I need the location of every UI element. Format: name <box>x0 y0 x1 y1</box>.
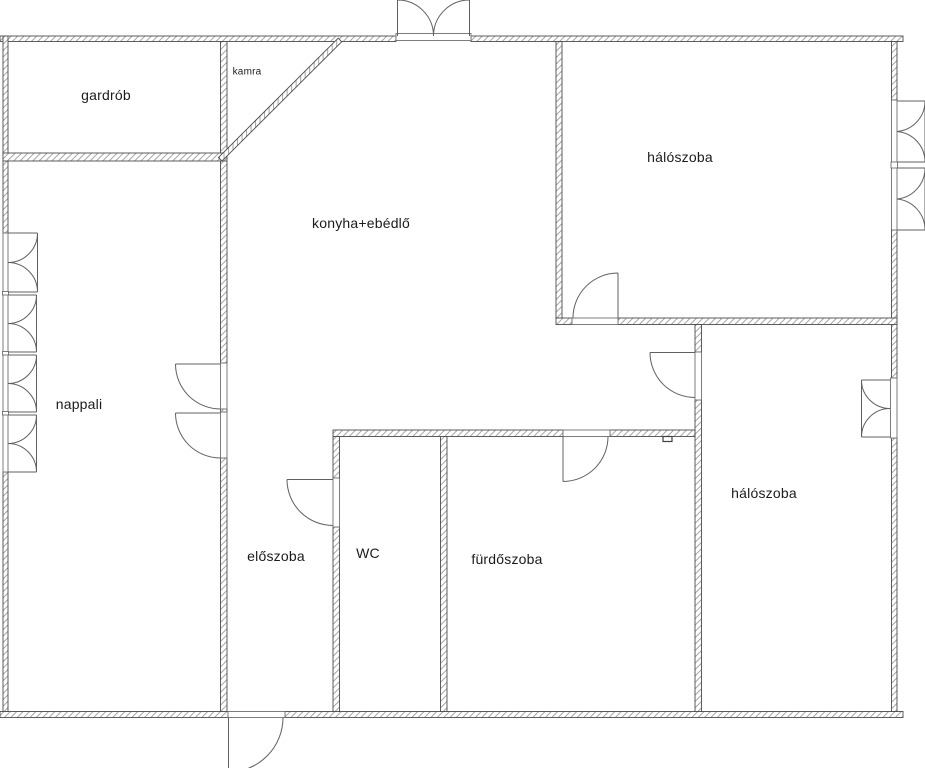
sill-wc-door <box>333 478 340 527</box>
sill-nappali-door-2 <box>221 412 228 458</box>
room-label-nappali: nappali <box>56 396 103 412</box>
door-entrance <box>229 718 284 768</box>
wall-gardrob-bottom <box>3 153 227 161</box>
window-haloszoba-also <box>862 380 891 437</box>
window-nappali-4 <box>8 415 37 472</box>
wall-haloszoba-bottom-right <box>618 318 897 325</box>
sill-entrance-door <box>228 712 285 718</box>
wall-nappali-konyha-lower <box>221 458 228 712</box>
door-wc <box>287 480 333 526</box>
wall-furdo-top-right <box>610 430 695 437</box>
floor-plan-drawing <box>0 0 925 768</box>
openings <box>3 34 898 718</box>
wall-bottom-right <box>285 712 903 718</box>
door-haloszoba-also <box>650 353 695 398</box>
frame-nappali-window-1 <box>3 292 9 296</box>
window-nappali-3 <box>8 355 37 412</box>
room-label-kamra: kamra <box>233 67 262 78</box>
wall-haloszoba2-left-lower <box>695 400 702 712</box>
wall-right-middle <box>892 230 898 378</box>
double-door-terrace <box>398 0 470 36</box>
wall-haloszoba2-left-upper <box>695 325 702 353</box>
wall-left-lower <box>3 472 8 712</box>
door-nappali-2 <box>176 413 221 458</box>
sill-haloszoba-also-door <box>695 352 702 400</box>
wall-wc-left-lower <box>333 527 340 712</box>
walls <box>0 36 903 718</box>
sill-haloszoba-felso-door <box>572 318 618 325</box>
wall-left-upper <box>3 36 8 233</box>
window-haloszoba-felso-2 <box>897 168 925 230</box>
room-label-konyha: konyha+ebédlő <box>312 215 410 231</box>
wall-notch-detail <box>663 437 672 442</box>
wall-bottom-left <box>0 712 228 718</box>
door-nappali-1 <box>176 364 221 409</box>
window-nappali-1 <box>8 233 38 292</box>
room-label-eloszoba: előszoba <box>247 548 305 564</box>
wall-nappali-konyha-upper <box>221 42 228 364</box>
window-haloszoba-felso-1 <box>897 101 925 162</box>
wall-haloszoba-bottom-left-stub <box>556 318 572 325</box>
sill-nappali-door-1 <box>221 363 228 409</box>
doors <box>176 0 696 768</box>
wall-kamra-diagonal <box>218 38 341 161</box>
room-label-wc: WC <box>356 545 380 561</box>
frame-haloszoba-felso-window <box>891 162 898 168</box>
wall-top-right <box>471 36 903 42</box>
frame-nappali-window-2 <box>3 352 9 356</box>
wall-wc-furdo-top-left <box>333 430 563 437</box>
sill-haloszoba-also-window <box>891 378 898 438</box>
wall-nappali-door-divider <box>221 409 228 412</box>
room-label-haloszoba-also: hálószoba <box>731 485 797 501</box>
wall-wc-right <box>441 437 448 712</box>
wall-wc-left-upper <box>333 437 340 479</box>
wall-right-upper <box>892 42 898 101</box>
wall-right-lower <box>892 438 898 712</box>
door-furdoszoba <box>563 437 608 482</box>
room-label-haloszoba-felso: hálószoba <box>647 149 713 165</box>
window-nappali-2 <box>8 295 37 352</box>
floor-plan: gardrób kamra konyha+ebédlő hálószoba na… <box>0 0 925 768</box>
room-label-furdoszoba: fürdőszoba <box>471 551 542 567</box>
wall-konyha-haloszoba <box>556 42 562 319</box>
door-haloszoba-felso <box>573 273 618 318</box>
sill-furdoszoba-door <box>563 430 610 437</box>
frame-nappali-window-3 <box>3 412 9 416</box>
room-label-gardrob: gardrób <box>81 87 131 103</box>
